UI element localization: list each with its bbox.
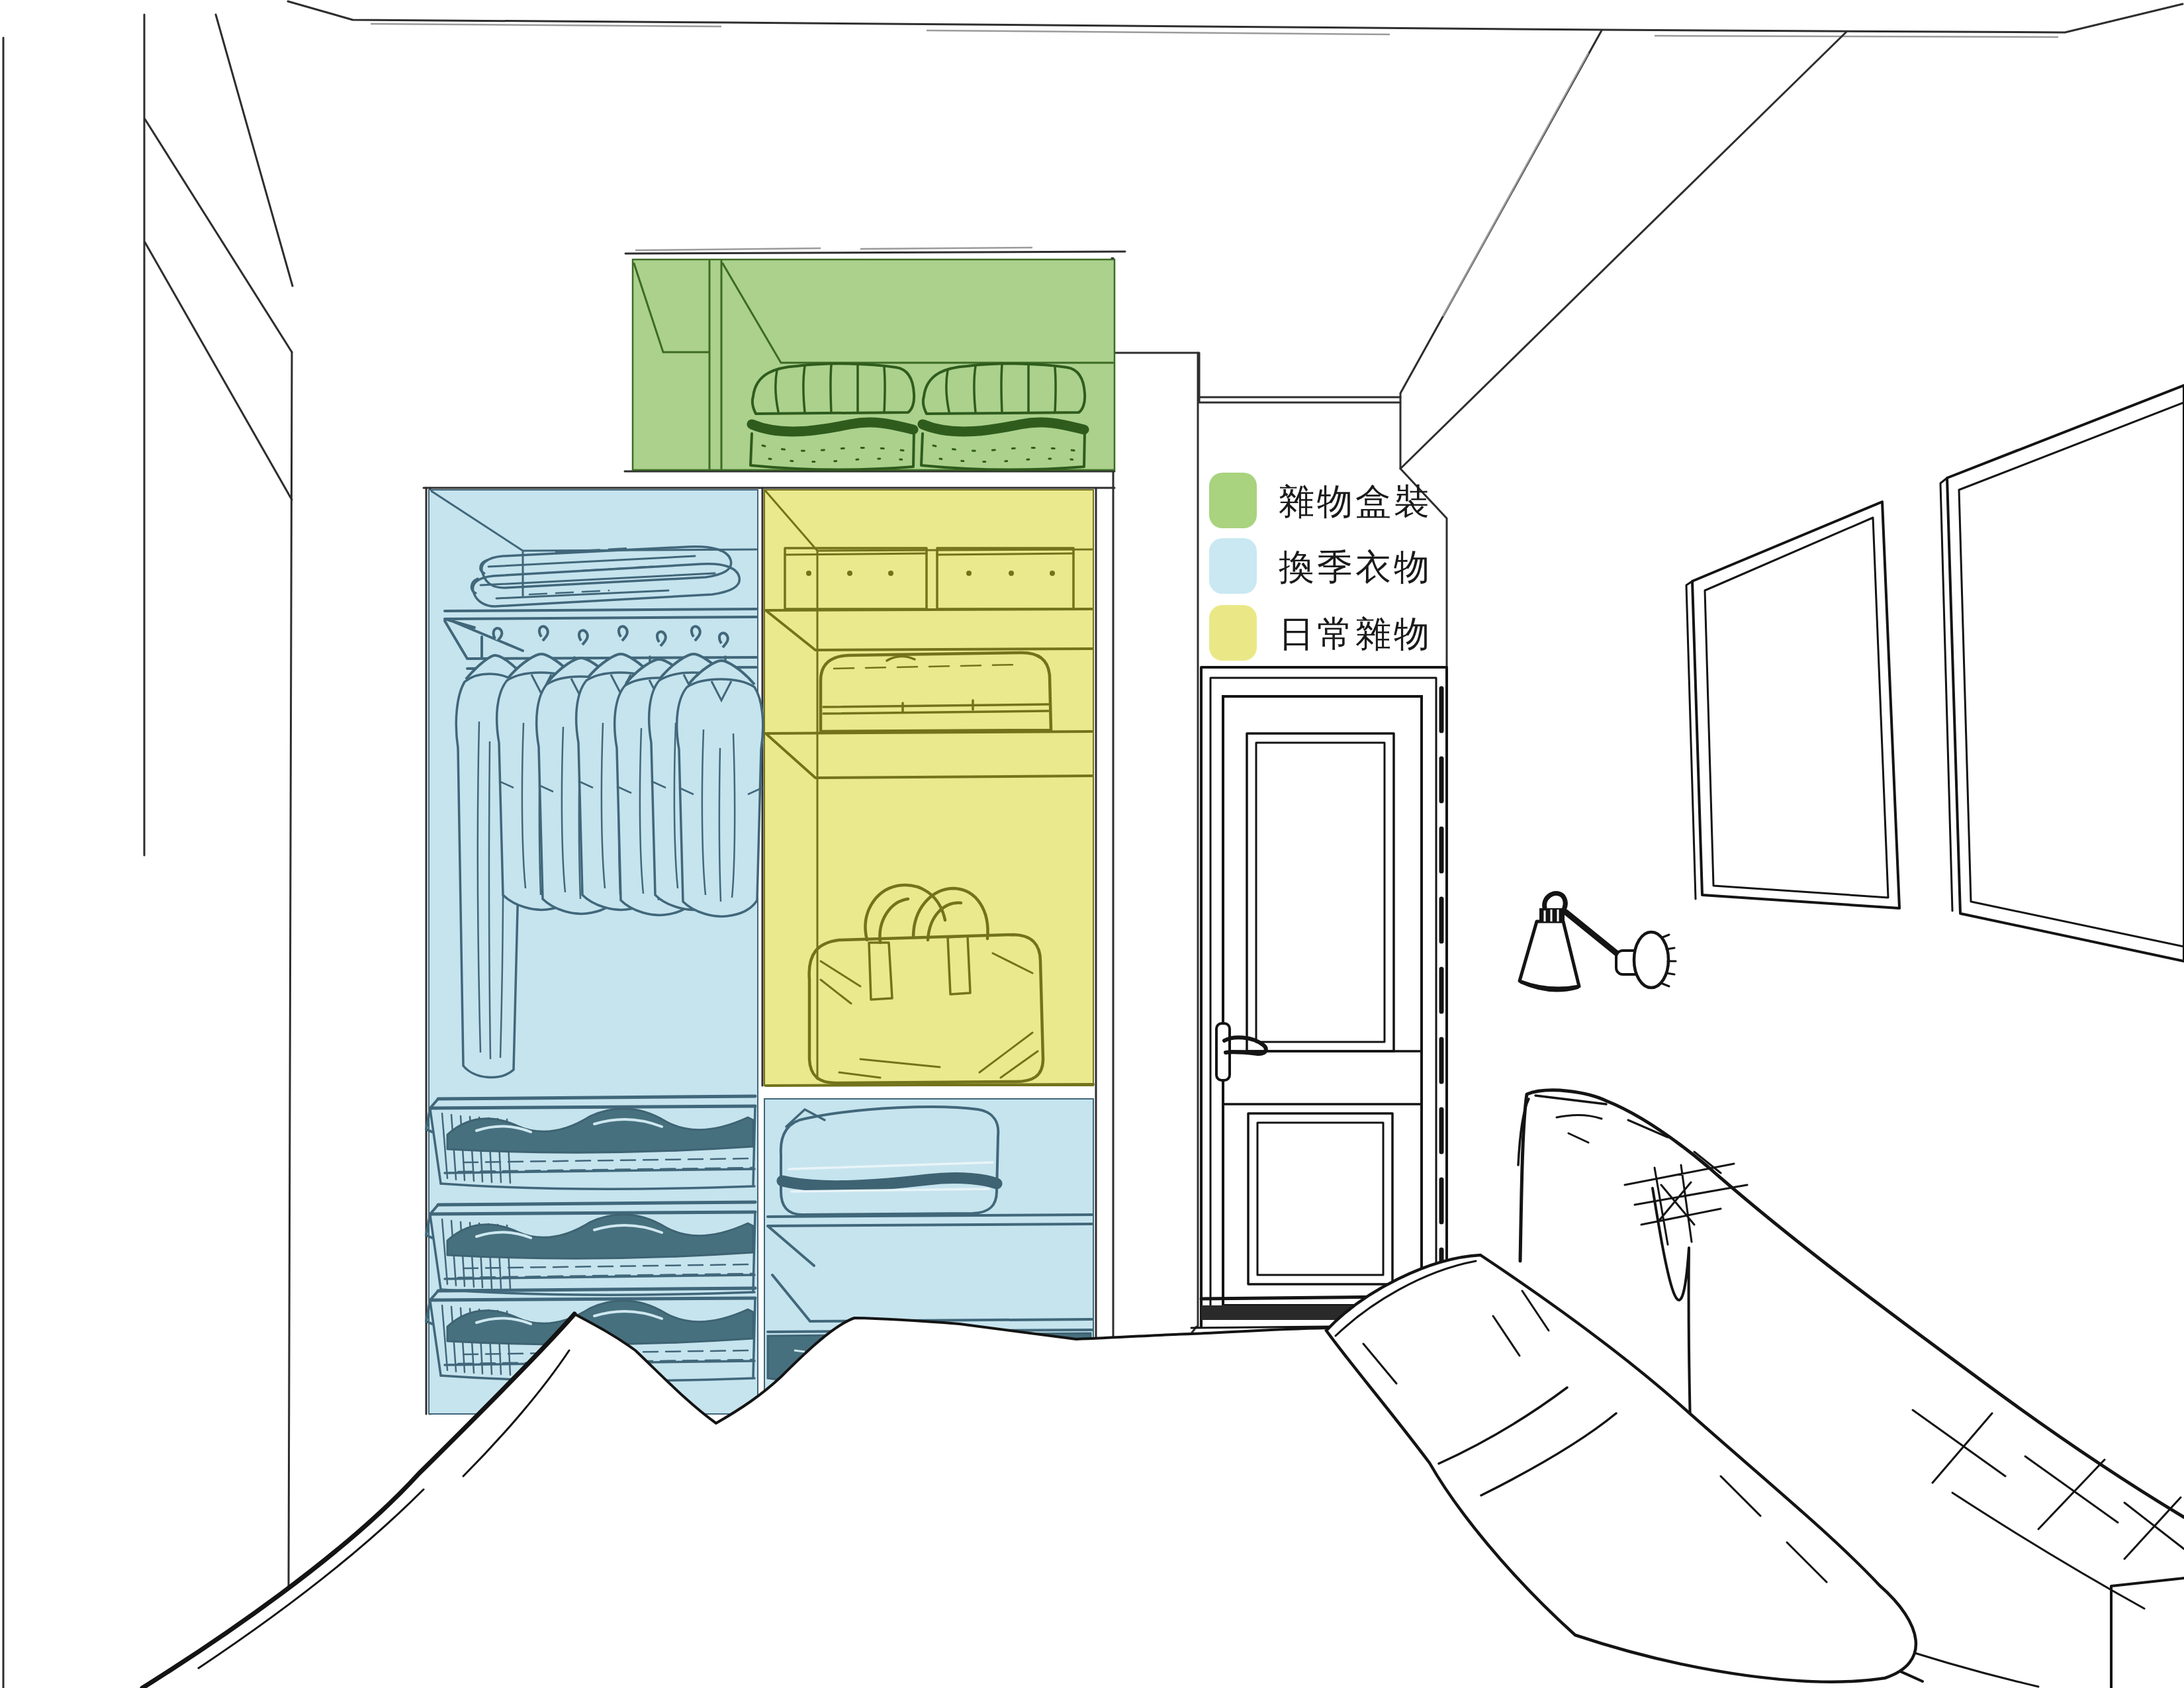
- closet-side-panel-edge: [289, 352, 339, 1688]
- bedroom-sketch-page: 雜物盒裝 換季衣物 日常雜物: [0, 0, 2184, 1688]
- left-wall-diagonal-2: [145, 242, 292, 500]
- lamp-shade: [1520, 921, 1579, 988]
- closet: [424, 248, 1125, 1414]
- closet-shelf-band: [424, 471, 1115, 488]
- legend-swatch-boxed-sundries: [1209, 473, 1257, 528]
- left-wall-diagonal-1: [145, 119, 292, 352]
- right-wall-top-overdraw: [1443, 53, 1588, 316]
- picture-frame-right: [1940, 385, 2184, 961]
- closet-top-overdraw: [635, 248, 1032, 250]
- legend-swatch-daily-sundries: [1209, 605, 1257, 661]
- closet-green-compartment: [633, 259, 1115, 470]
- legend-label-seasonal-clothing: 換季衣物: [1279, 546, 1432, 588]
- right-wall-top-edge: [1400, 30, 1846, 469]
- closet-top-edge: [625, 252, 1125, 254]
- yellow-bottom-shelf: [766, 1084, 1093, 1086]
- picture-frames: [1686, 385, 2184, 961]
- bedroom-sketch: 雜物盒裝 換季衣物 日常雜物: [0, 0, 2184, 1688]
- lamp-wall-mount: [1634, 932, 1668, 988]
- ceiling-line: [288, 1, 2183, 32]
- closet-blue-compartment: [426, 490, 763, 1414]
- closet-yellow-compartment: [764, 490, 1093, 1086]
- legend-label-boxed-sundries: 雜物盒裝: [1279, 481, 1432, 522]
- legend-label-daily-sundries: 日常雜物: [1279, 613, 1432, 655]
- door: [1191, 667, 1456, 1328]
- legend: 雜物盒裝 換季衣物 日常雜物: [1209, 473, 1432, 661]
- lamp-arm: [1566, 912, 1621, 957]
- legend-swatch-seasonal-clothing: [1209, 538, 1257, 594]
- wall-lamp: [1520, 894, 1676, 991]
- picture-frame-left: [1686, 502, 1899, 908]
- yellow-zone: [764, 490, 1093, 1086]
- left-wall-diagonal-3: [216, 15, 293, 286]
